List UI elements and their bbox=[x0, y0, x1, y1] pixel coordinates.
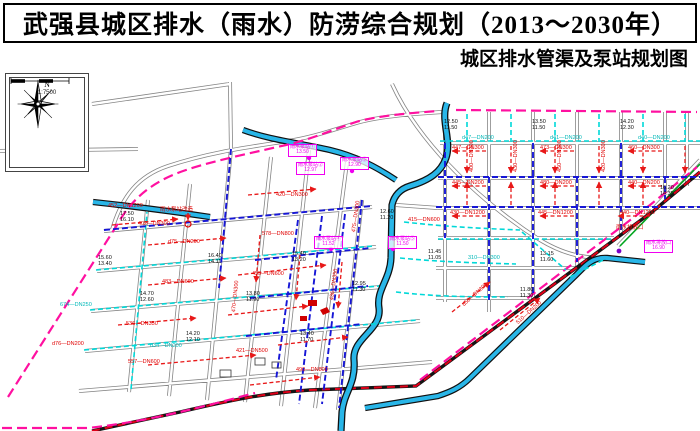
page-title: 武强县城区排水（雨水）防涝综合规划（2013～2030年） bbox=[23, 5, 677, 41]
road-network bbox=[0, 82, 700, 410]
road-network-casing bbox=[0, 82, 700, 410]
pipes-red bbox=[112, 146, 685, 385]
scale-bar bbox=[10, 78, 70, 84]
title-box: 武强县城区排水（雨水）防涝综合规划（2013～2030年） bbox=[3, 3, 697, 43]
page-subtitle: 城区排水管渠及泵站规划图 bbox=[460, 44, 688, 71]
compass-box: N 1:7500 bbox=[5, 73, 89, 172]
compass-rose-icon bbox=[10, 78, 66, 130]
pipes-blue bbox=[104, 143, 700, 408]
planning-map-page: { "header": { "title": "武强县城区排水（雨水）防涝综合规… bbox=[0, 0, 700, 431]
compass-inner-frame: N 1:7500 bbox=[9, 77, 85, 168]
